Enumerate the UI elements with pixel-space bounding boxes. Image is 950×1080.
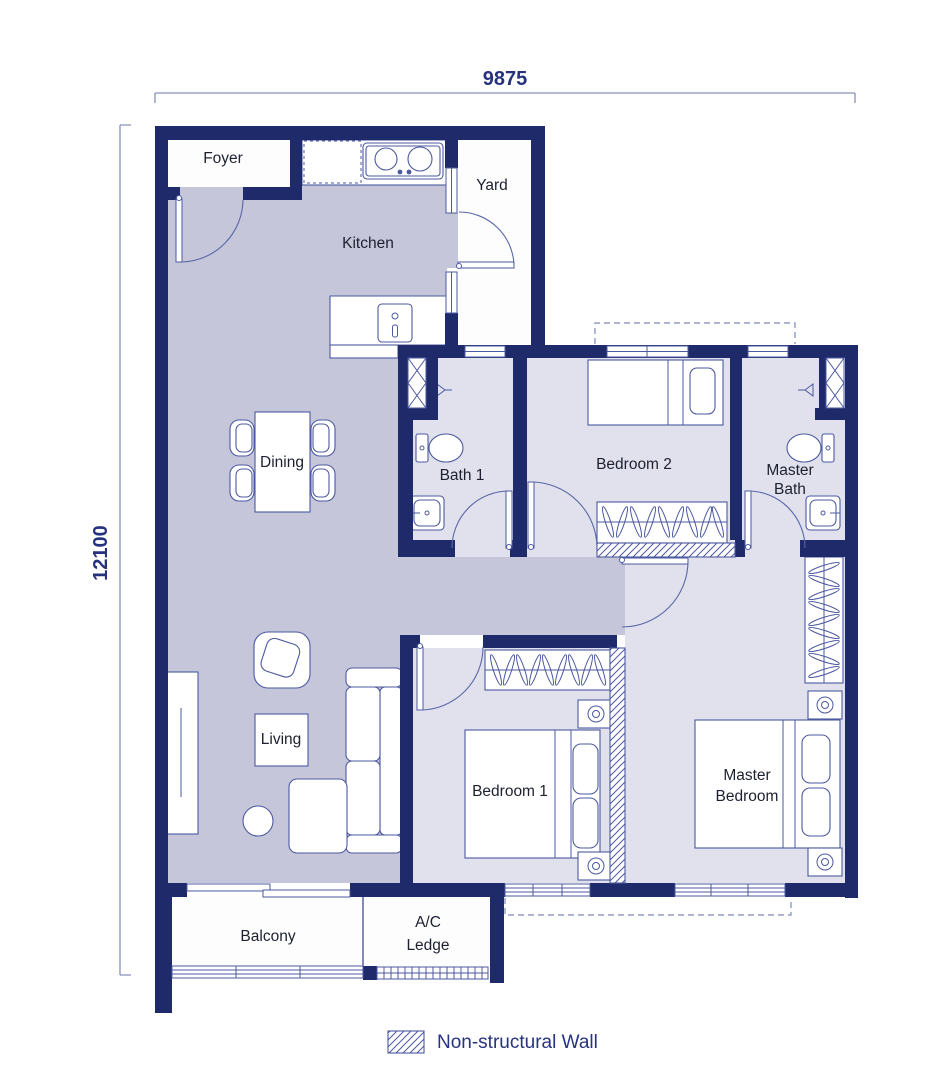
fridge-space-icon — [304, 141, 361, 183]
living-label: Living — [261, 731, 302, 748]
nightstand-icon — [578, 852, 614, 880]
wardrobe-icon — [805, 557, 843, 683]
legend-label: Non-structural Wall — [437, 1032, 598, 1053]
dimension-top-value: 9875 — [483, 68, 528, 90]
tv-console-icon — [167, 672, 198, 834]
kitchen-label: Kitchen — [342, 235, 394, 252]
yard-floor — [458, 140, 531, 345]
window — [505, 884, 590, 896]
corridor-floor — [413, 557, 625, 635]
master-bath-label: Master — [766, 462, 813, 479]
ac-ledge-label: Ledge — [406, 937, 449, 954]
window — [607, 346, 688, 357]
side-table-icon — [243, 806, 273, 836]
ac-ledge-label: A/C — [415, 914, 441, 931]
floor-plan: Foyer Kitchen Yard Dining Bath 1 Bedroom… — [0, 0, 950, 1080]
double-bed-icon — [695, 720, 840, 848]
bedroom1-label: Bedroom 1 — [472, 783, 548, 800]
dining-chair-icon — [230, 465, 254, 501]
window — [446, 272, 457, 313]
foyer-label: Foyer — [203, 150, 243, 167]
wardrobe-icon — [485, 650, 610, 690]
single-bed-icon — [588, 360, 723, 425]
yard-label: Yard — [476, 177, 508, 194]
dining-chair-icon — [311, 420, 335, 456]
ac-ledge-floor — [363, 897, 490, 967]
kitchen-sink-icon — [378, 304, 412, 342]
nightstand-icon — [578, 700, 614, 728]
legend: Non-structural Wall — [388, 1031, 598, 1053]
kitchen-counter-edge — [330, 345, 398, 358]
pillow-icon — [573, 744, 598, 794]
shaft-icon — [408, 358, 426, 408]
balcony-label: Balcony — [240, 928, 295, 945]
window — [675, 884, 785, 896]
dimension-left: 12100 — [90, 125, 131, 975]
dining-chair-icon — [311, 465, 335, 501]
dining-chair-icon — [230, 420, 254, 456]
toilet-icon — [787, 434, 834, 462]
master-bath-label: Bath — [774, 481, 806, 498]
armchair-icon — [254, 632, 310, 688]
nightstand-icon — [808, 848, 842, 876]
window — [465, 346, 505, 357]
non-structural-wall — [610, 648, 625, 883]
bedroom2-label: Bedroom 2 — [596, 456, 672, 473]
pillow-icon — [690, 368, 715, 414]
stove-icon — [363, 143, 443, 179]
washbasin-icon — [410, 496, 444, 530]
window — [446, 168, 457, 213]
sliding-door — [187, 884, 350, 897]
master-bedroom-label: Bedroom — [716, 788, 779, 805]
ac-louvre — [377, 967, 488, 979]
nightstand-icon — [808, 691, 842, 719]
toilet-icon — [416, 434, 463, 462]
master-bedroom-label: Master — [723, 767, 770, 784]
window — [748, 346, 788, 357]
pillow-icon — [573, 798, 598, 848]
dining-label: Dining — [260, 454, 304, 471]
bedroom1-furniture — [465, 650, 614, 880]
shaft-icon — [826, 358, 844, 408]
dimension-left-value: 12100 — [90, 525, 112, 581]
pillow-icon — [802, 788, 830, 836]
dimension-top: 9875 — [155, 68, 855, 103]
bath1-label: Bath 1 — [440, 467, 485, 484]
non-structural-wall-swatch — [388, 1031, 424, 1053]
non-structural-wall — [597, 543, 735, 557]
washbasin-icon — [806, 496, 840, 530]
balcony-railing — [172, 966, 363, 978]
wardrobe-icon — [597, 502, 727, 543]
pillow-icon — [802, 735, 830, 783]
